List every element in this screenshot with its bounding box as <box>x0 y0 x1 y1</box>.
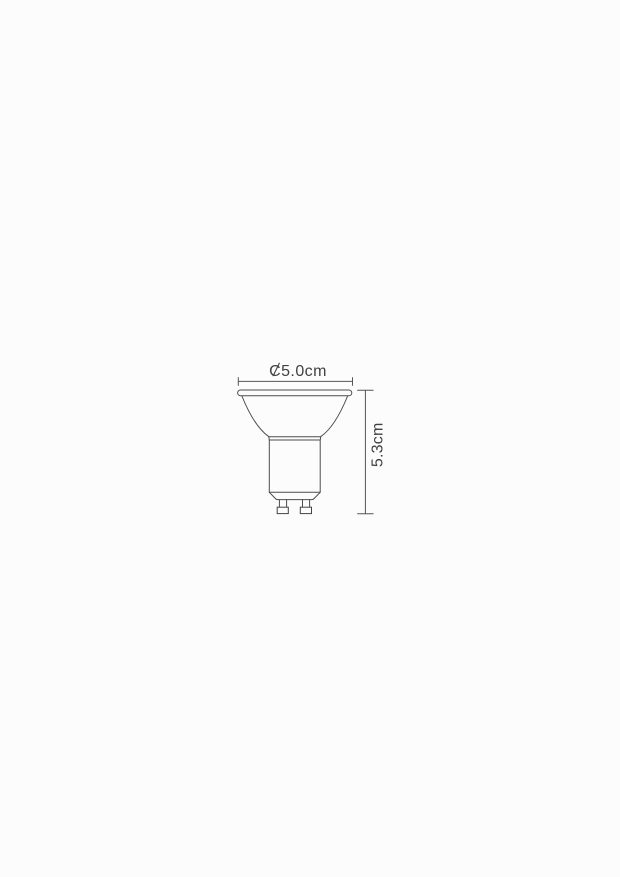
svg-text:5.3cm: 5.3cm <box>370 423 387 468</box>
